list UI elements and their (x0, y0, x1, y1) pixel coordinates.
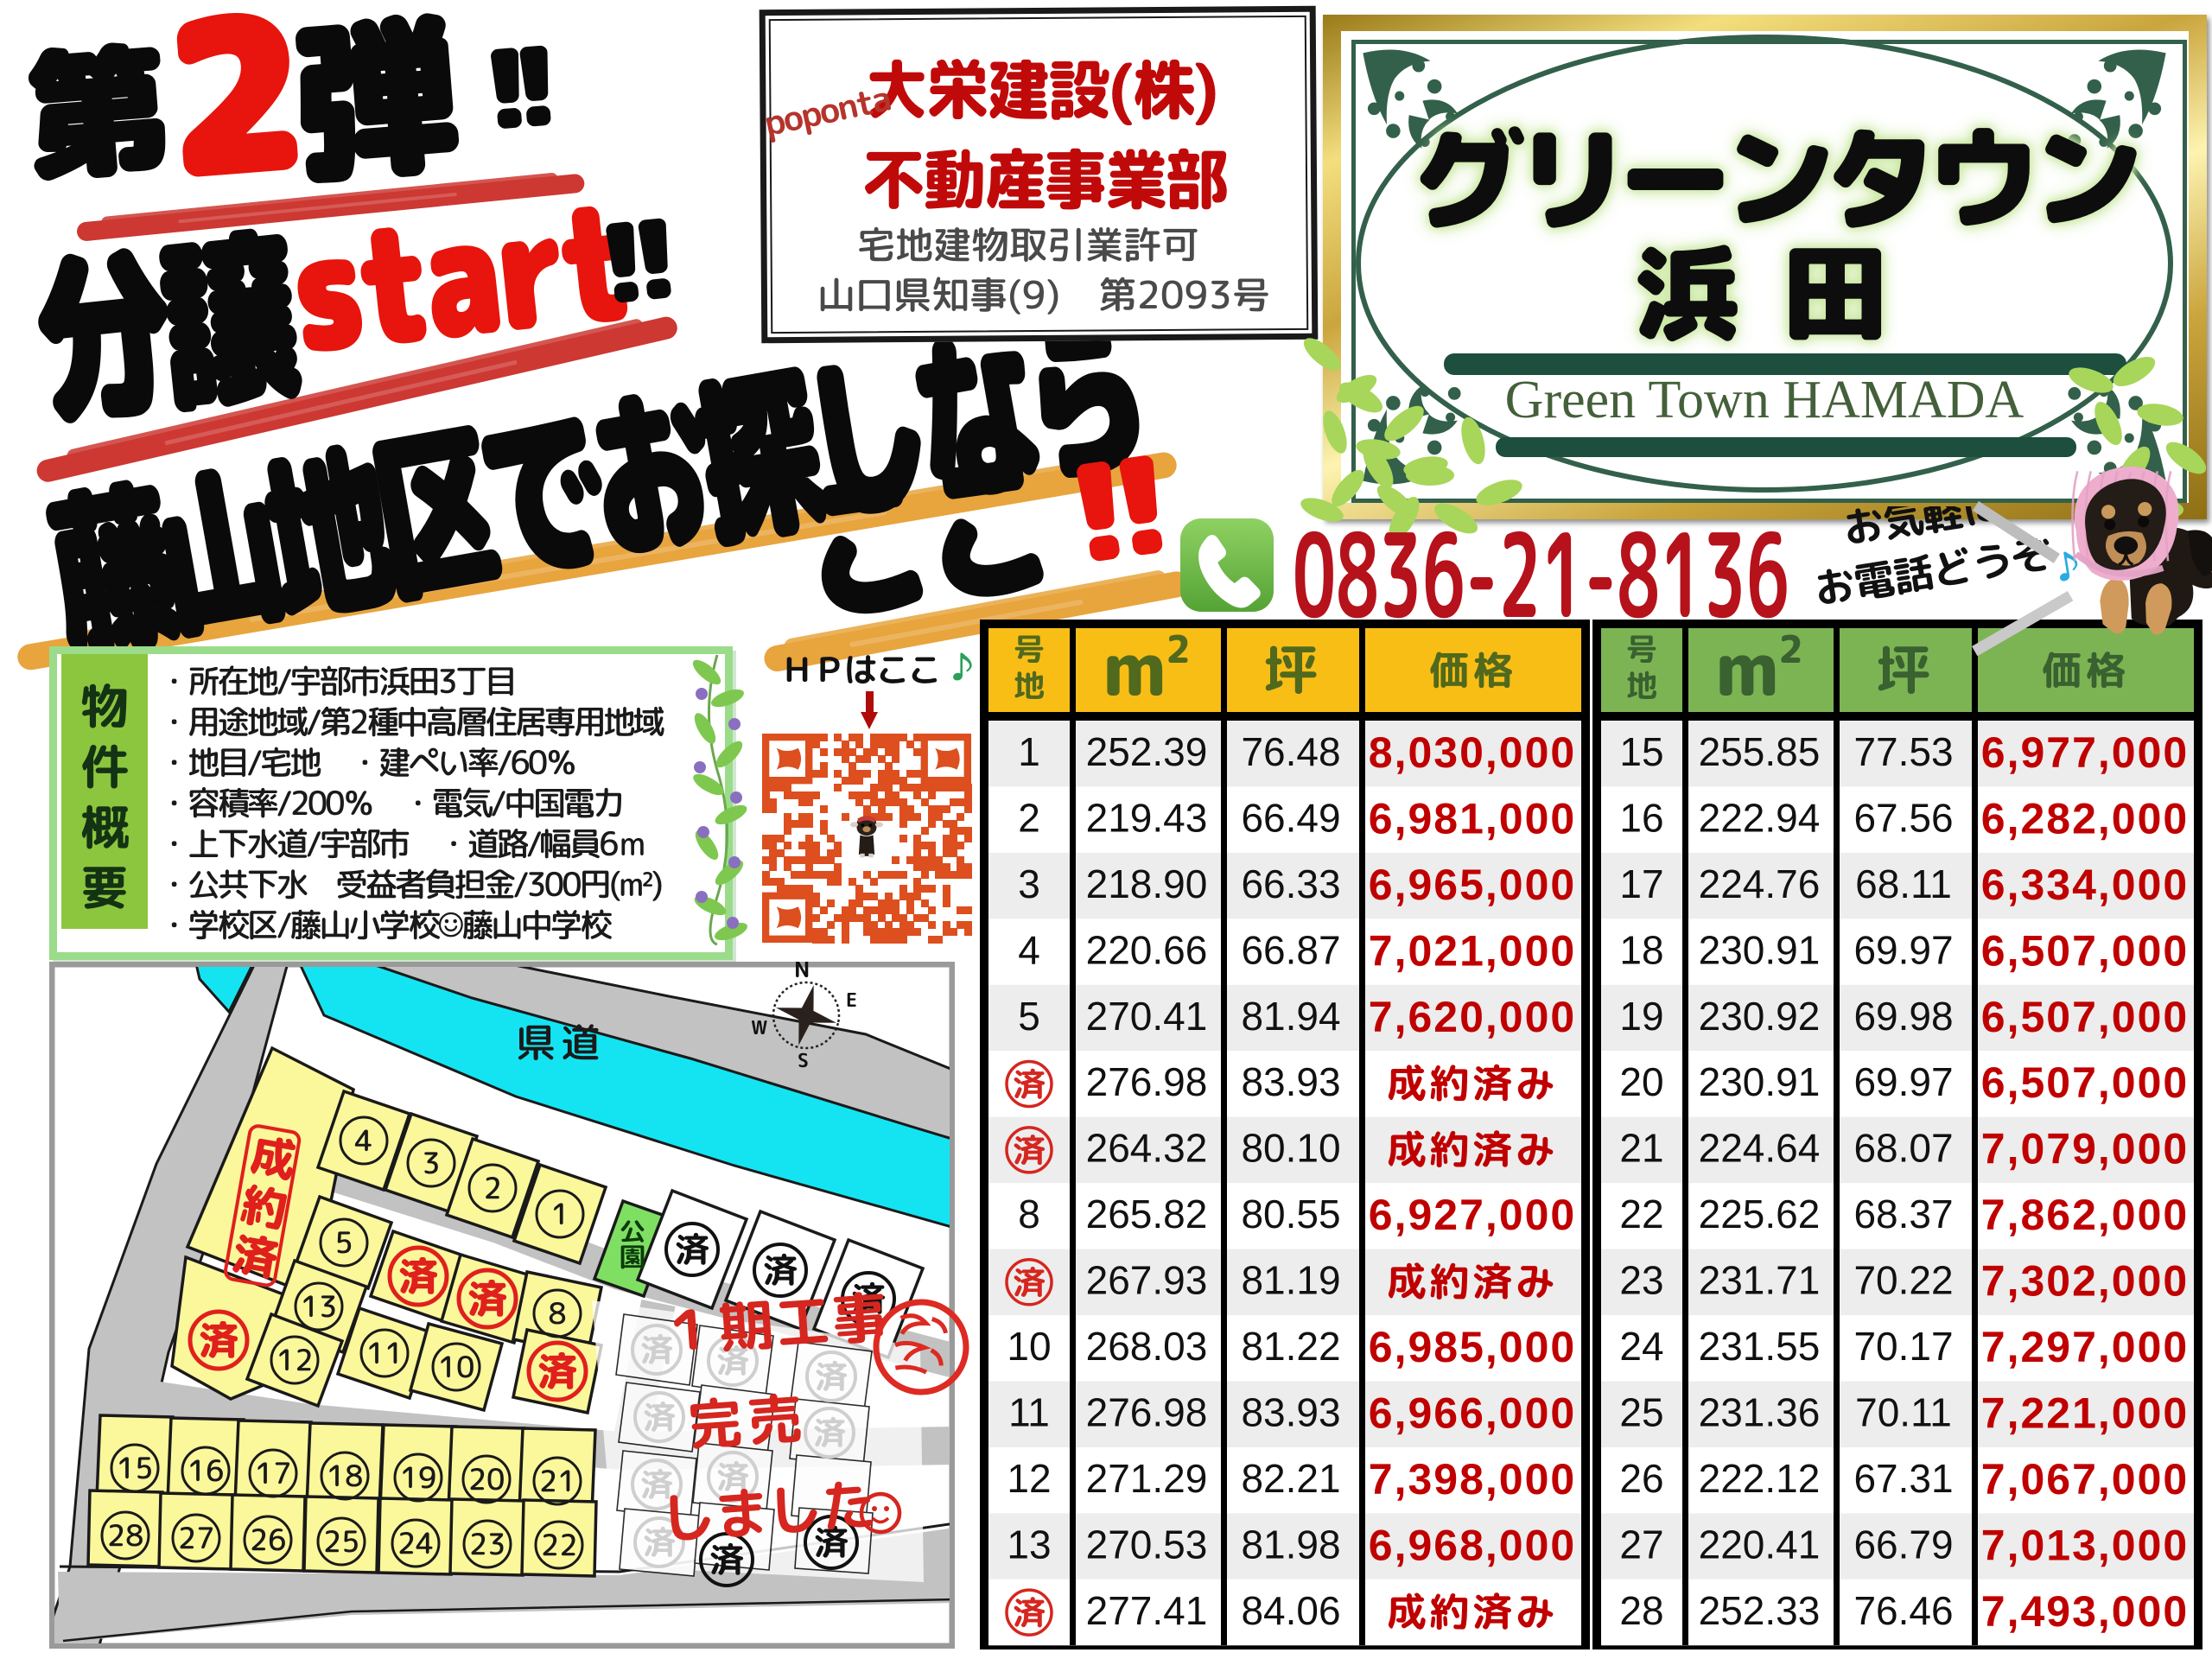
svg-text:68.11: 68.11 (1855, 861, 1952, 906)
svg-text:69.97: 69.97 (1853, 1059, 1953, 1104)
svg-text:271.29: 271.29 (1086, 1456, 1208, 1501)
svg-text:24: 24 (1619, 1324, 1663, 1369)
svg-text:21: 21 (1619, 1126, 1663, 1171)
svg-text:230.92: 230.92 (1699, 994, 1821, 1039)
svg-text:81.94: 81.94 (1241, 994, 1340, 1039)
svg-text:83.93: 83.93 (1241, 1059, 1340, 1104)
svg-text:220.66: 220.66 (1086, 927, 1208, 972)
svg-text:81.19: 81.19 (1241, 1258, 1340, 1303)
svg-text:7,620,000: 7,620,000 (1369, 993, 1576, 1041)
svg-text:6,981,000: 6,981,000 (1369, 794, 1576, 842)
svg-text:84.06: 84.06 (1241, 1588, 1340, 1633)
svg-text:19: 19 (1619, 994, 1663, 1039)
svg-text:6,968,000: 6,968,000 (1369, 1521, 1576, 1569)
svg-text:8,030,000: 8,030,000 (1369, 728, 1576, 777)
svg-text:81.22: 81.22 (1241, 1324, 1340, 1369)
svg-text:82.21: 82.21 (1241, 1456, 1340, 1501)
svg-text:231.36: 231.36 (1699, 1390, 1821, 1435)
svg-text:6,507,000: 6,507,000 (1981, 926, 2189, 975)
svg-text:7,221,000: 7,221,000 (1981, 1389, 2189, 1438)
svg-text:252.39: 252.39 (1086, 729, 1208, 774)
svg-text:264.32: 264.32 (1086, 1126, 1208, 1171)
svg-text:7,079,000: 7,079,000 (1981, 1125, 2189, 1173)
svg-text:12: 12 (1007, 1456, 1051, 1501)
svg-text:270.41: 270.41 (1086, 994, 1208, 1039)
svg-text:80.55: 80.55 (1241, 1192, 1340, 1236)
svg-text:10: 10 (1007, 1324, 1051, 1369)
svg-text:224.64: 224.64 (1699, 1126, 1821, 1171)
svg-text:70.22: 70.22 (1853, 1258, 1953, 1303)
svg-text:4: 4 (1018, 927, 1040, 972)
svg-text:276.98: 276.98 (1086, 1390, 1208, 1435)
svg-text:276.98: 276.98 (1086, 1059, 1208, 1104)
svg-text:66.87: 66.87 (1241, 927, 1340, 972)
svg-text:270.53: 270.53 (1086, 1522, 1208, 1567)
svg-text:22: 22 (1619, 1192, 1663, 1236)
svg-text:218.90: 218.90 (1086, 861, 1208, 906)
svg-text:20: 20 (1619, 1059, 1663, 1104)
svg-text:68.37: 68.37 (1853, 1192, 1953, 1236)
svg-text:7,067,000: 7,067,000 (1981, 1455, 2189, 1503)
svg-text:23: 23 (1619, 1258, 1663, 1303)
svg-text:7,302,000: 7,302,000 (1981, 1257, 2189, 1306)
svg-text:6,966,000: 6,966,000 (1369, 1389, 1576, 1438)
svg-text:3: 3 (1018, 861, 1040, 906)
svg-text:220.41: 220.41 (1699, 1522, 1821, 1567)
svg-text:26: 26 (1619, 1456, 1663, 1501)
svg-text:7,493,000: 7,493,000 (1981, 1587, 2189, 1636)
svg-text:15: 15 (1619, 729, 1663, 774)
svg-text:81.98: 81.98 (1241, 1522, 1340, 1567)
svg-text:222.94: 222.94 (1699, 795, 1821, 840)
svg-text:231.55: 231.55 (1699, 1324, 1821, 1369)
svg-text:230.91: 230.91 (1699, 1059, 1821, 1104)
svg-text:25: 25 (1619, 1390, 1663, 1435)
svg-text:224.76: 224.76 (1699, 861, 1821, 906)
svg-text:267.93: 267.93 (1086, 1258, 1208, 1303)
svg-text:277.41: 277.41 (1086, 1588, 1208, 1633)
svg-text:230.91: 230.91 (1699, 927, 1821, 972)
svg-text:6,282,000: 6,282,000 (1981, 794, 2189, 842)
svg-text:76.48: 76.48 (1241, 729, 1340, 774)
svg-text:28: 28 (1619, 1588, 1663, 1633)
svg-text:222.12: 222.12 (1699, 1456, 1821, 1501)
svg-text:66.33: 66.33 (1241, 861, 1340, 906)
svg-text:7,297,000: 7,297,000 (1981, 1323, 2189, 1371)
svg-text:66.49: 66.49 (1241, 795, 1340, 840)
svg-text:67.56: 67.56 (1853, 795, 1953, 840)
svg-text:27: 27 (1619, 1522, 1663, 1567)
svg-text:69.98: 69.98 (1853, 994, 1953, 1039)
svg-text:6,507,000: 6,507,000 (1981, 993, 2189, 1041)
svg-text:17: 17 (1619, 861, 1663, 906)
svg-text:83.93: 83.93 (1241, 1390, 1340, 1435)
svg-text:2: 2 (1018, 795, 1040, 840)
svg-text:77.53: 77.53 (1853, 729, 1953, 774)
svg-text:13: 13 (1007, 1522, 1051, 1567)
svg-text:7,021,000: 7,021,000 (1369, 926, 1576, 975)
svg-text:6,334,000: 6,334,000 (1981, 861, 2189, 909)
svg-text:70.11: 70.11 (1855, 1390, 1952, 1435)
svg-text:252.33: 252.33 (1699, 1588, 1821, 1633)
svg-text:1: 1 (1018, 729, 1040, 774)
svg-text:255.85: 255.85 (1699, 729, 1821, 774)
svg-text:69.97: 69.97 (1853, 927, 1953, 972)
svg-text:11: 11 (1008, 1390, 1050, 1435)
svg-text:6,507,000: 6,507,000 (1981, 1058, 2189, 1107)
svg-text:219.43: 219.43 (1086, 795, 1208, 840)
svg-text:6,977,000: 6,977,000 (1981, 728, 2189, 777)
svg-text:6,965,000: 6,965,000 (1369, 861, 1576, 909)
svg-text:68.07: 68.07 (1853, 1126, 1953, 1171)
svg-text:231.71: 231.71 (1699, 1258, 1821, 1303)
svg-text:7,013,000: 7,013,000 (1981, 1521, 2189, 1569)
svg-text:268.03: 268.03 (1086, 1324, 1208, 1369)
svg-text:7,398,000: 7,398,000 (1369, 1455, 1576, 1503)
svg-text:265.82: 265.82 (1086, 1192, 1208, 1236)
svg-text:6,927,000: 6,927,000 (1369, 1191, 1576, 1239)
svg-text:67.31: 67.31 (1853, 1456, 1953, 1501)
svg-text:8: 8 (1018, 1192, 1040, 1236)
svg-text:76.46: 76.46 (1853, 1588, 1953, 1633)
svg-text:18: 18 (1619, 927, 1663, 972)
svg-text:7,862,000: 7,862,000 (1981, 1191, 2189, 1239)
svg-text:225.62: 225.62 (1699, 1192, 1821, 1236)
svg-text:66.79: 66.79 (1853, 1522, 1953, 1567)
svg-text:16: 16 (1619, 795, 1663, 840)
svg-text:6,985,000: 6,985,000 (1369, 1323, 1576, 1371)
svg-text:80.10: 80.10 (1241, 1126, 1340, 1171)
svg-text:5: 5 (1018, 994, 1040, 1039)
svg-text:70.17: 70.17 (1853, 1324, 1953, 1369)
